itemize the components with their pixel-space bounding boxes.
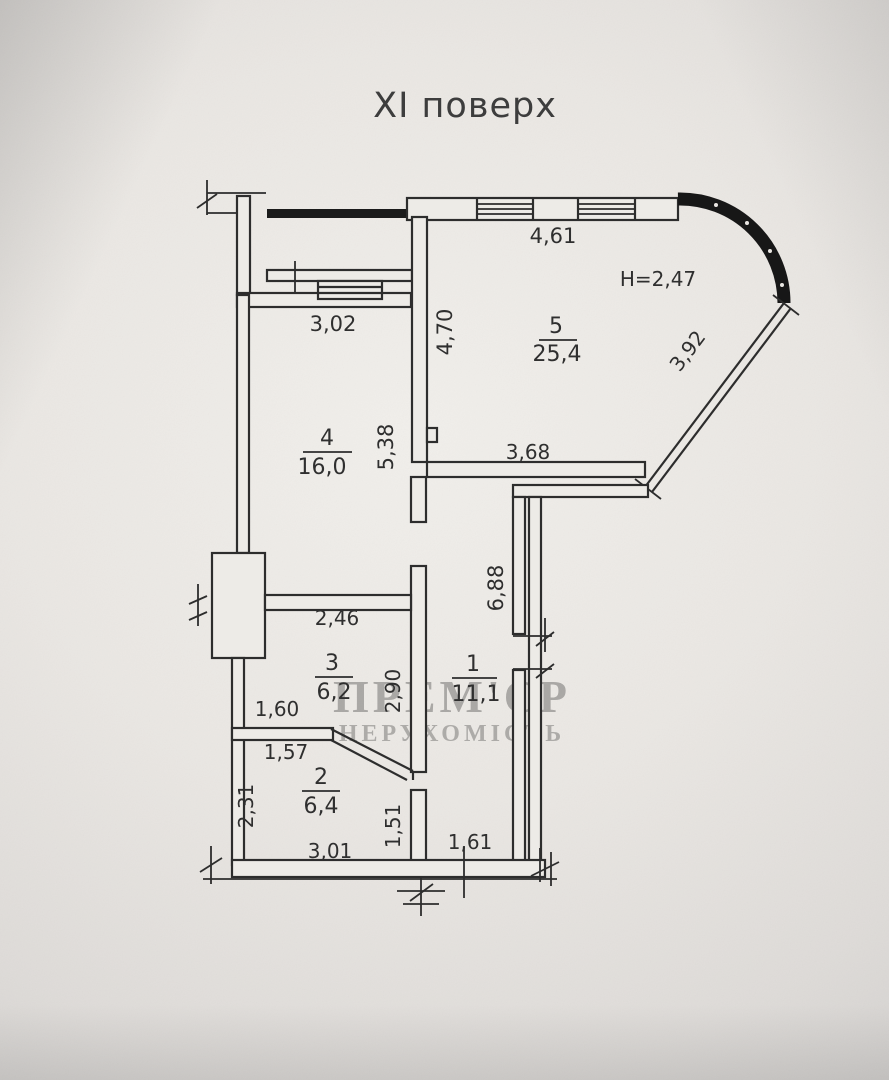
dim-room3-height: 2,90 — [381, 669, 405, 714]
dim-room2-right: 1,51 — [381, 804, 405, 849]
shaft — [212, 553, 265, 658]
dim-room1-bottom: 1,61 — [448, 830, 493, 854]
window-hatch — [318, 281, 382, 299]
scanned-floorplan-photo: XI поверх ПРЕМ'ЄР НЕРУХОМІСТЬ — [0, 0, 889, 1080]
floor-plan-svg: XI поверх ПРЕМ'ЄР НЕРУХОМІСТЬ — [0, 0, 889, 1080]
dim-room4-height: 5,38 — [374, 424, 398, 471]
dim-hall-segment: 1,60 — [255, 697, 300, 721]
room3-number: 3 — [325, 651, 339, 676]
page-title: XI поверх — [373, 86, 557, 126]
balcony-glazing-line — [267, 209, 412, 218]
dim-room2-left: 2,31 — [234, 784, 258, 829]
room5-area: 25,4 — [533, 342, 582, 367]
room4-area: 16,0 — [298, 455, 347, 480]
dim-room5-left-height: 4,70 — [433, 309, 457, 356]
room1-area: 11,1 — [452, 682, 501, 707]
room3-area: 6,2 — [317, 680, 352, 705]
dim-room3-top: 2,46 — [315, 606, 360, 630]
room4-number: 4 — [320, 426, 334, 451]
room2-area: 6,4 — [304, 794, 339, 819]
dim-top-window: 4,61 — [530, 224, 577, 248]
top-window-band — [407, 198, 678, 220]
dim-room5-bottom: 3,68 — [506, 440, 551, 464]
dim-room2-top: 1,57 — [264, 740, 309, 764]
paper-grain-texture — [0, 0, 889, 1080]
dim-room1-height: 6,88 — [484, 565, 508, 612]
room2-number: 2 — [314, 765, 328, 790]
dim-room4-width: 3,02 — [310, 312, 357, 336]
ceiling-height-label: H=2,47 — [620, 267, 696, 291]
room1-number: 1 — [466, 652, 480, 677]
dim-room2-bottom: 3,01 — [308, 839, 353, 863]
room5-number: 5 — [549, 314, 563, 339]
